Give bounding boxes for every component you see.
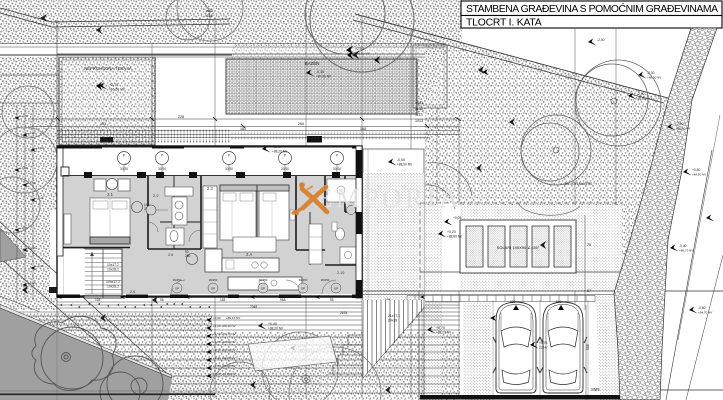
svg-text:+88,50 NV: +88,50 NV	[397, 163, 413, 167]
svg-text:+1,80 +90,00 NV: +1,80 +90,00 NV	[213, 340, 236, 344]
svg-text:90/250: 90/250	[173, 278, 182, 282]
svg-text:90/250: 90/250	[209, 278, 218, 282]
svg-text:-2,00: -2,00	[597, 38, 605, 42]
svg-text:+0,90: +0,90	[213, 316, 221, 320]
svg-text:-0,60: -0,60	[698, 306, 706, 310]
svg-text:+88,30 NV: +88,30 NV	[647, 76, 661, 80]
svg-text:103: 103	[100, 122, 106, 126]
svg-text:-0,00: -0,00	[397, 158, 405, 162]
svg-text:2678: 2678	[340, 311, 347, 315]
svg-text:+87,50 NV: +87,50 NV	[316, 75, 332, 79]
svg-text:260: 260	[298, 122, 304, 126]
svg-text:1463: 1463	[415, 101, 423, 105]
svg-text:-85,50 NV: -85,50 NV	[637, 97, 651, 101]
svg-text:+2,70: +2,70	[20, 114, 28, 118]
svg-text:-0,40: -0,40	[679, 244, 687, 248]
svg-text:+1,20: +1,20	[36, 196, 44, 200]
svg-text:NEPROHODNA TERASA: NEPROHODNA TERASA	[84, 66, 132, 71]
svg-text:+0,20: +0,20	[447, 230, 456, 234]
svg-text:1125: 1125	[205, 14, 213, 18]
svg-text:+89,10 NV: +89,10 NV	[226, 316, 240, 320]
svg-text:+2,10: +2,10	[36, 146, 44, 150]
svg-text:2.10: 2.10	[337, 271, 344, 275]
svg-text:-0,30: -0,30	[316, 70, 324, 74]
svg-text:95A: 95A	[280, 298, 287, 302]
svg-text:+0,70: +0,70	[436, 326, 445, 330]
svg-text:+0,15: +0,15	[28, 281, 36, 285]
svg-text:183: 183	[240, 127, 246, 131]
svg-text:2.3: 2.3	[207, 186, 213, 191]
svg-text:+0,40: +0,40	[272, 145, 281, 149]
svg-text:250: 250	[185, 254, 191, 258]
svg-text:2.2: 2.2	[153, 193, 159, 198]
svg-text:SP: SP	[175, 287, 179, 291]
svg-text:30/30: 30/30	[120, 167, 128, 171]
svg-text:10x28,2: 10x28,2	[107, 268, 119, 272]
svg-text:+2,40: +2,40	[28, 131, 36, 135]
svg-text:1013: 1013	[415, 119, 423, 123]
svg-text:+0,80: +0,80	[692, 168, 701, 172]
svg-text:+2,40: +2,40	[355, 47, 364, 51]
svg-text:+84,70 NV: +84,70 NV	[698, 311, 712, 315]
svg-text:103: 103	[95, 298, 101, 302]
svg-text:90/250: 90/250	[321, 278, 330, 282]
svg-text:30/30: 30/30	[158, 167, 166, 171]
svg-text:+0,40: +0,40	[268, 322, 277, 326]
svg-text:SP: SP	[261, 287, 265, 291]
svg-text:10x17,2: 10x17,2	[107, 263, 119, 267]
svg-text:2.A: 2.A	[246, 252, 252, 257]
svg-text:+1,20 +89,40 NV: +1,20 +89,40 NV	[213, 324, 236, 328]
svg-text:500: 500	[510, 300, 516, 304]
svg-text:-2,00: -2,00	[637, 92, 645, 96]
svg-text:SP: SP	[211, 287, 215, 291]
svg-text:SP: SP	[334, 287, 338, 291]
svg-text:30/30: 30/30	[333, 167, 341, 171]
svg-text:95: 95	[160, 298, 164, 302]
svg-text:+2,10 +90,30 NV: +2,10 +90,30 NV	[213, 348, 236, 352]
svg-text:TLOCRT I. KATA: TLOCRT I. KATA	[466, 18, 542, 29]
svg-text:30/30: 30/30	[225, 167, 233, 171]
svg-text:+86,70 NV: +86,70 NV	[679, 249, 693, 253]
svg-text:+2,70: +2,70	[109, 83, 118, 87]
svg-text:EMPORIA: EMPORIA	[316, 183, 462, 213]
svg-text:+0,75: +0,75	[539, 341, 548, 345]
svg-text:75: 75	[587, 243, 591, 247]
svg-text:90/250: 90/250	[299, 278, 308, 282]
svg-text:95: 95	[330, 298, 334, 302]
svg-text:STAMBENA GRAĐEVINA S POMOĆNIM: STAMBENA GRAĐEVINA S POMOĆNIM GRAĐEVINAM…	[466, 2, 718, 15]
svg-text:+88,20 NV: +88,20 NV	[436, 331, 452, 335]
svg-text:SP: SP	[301, 287, 305, 291]
svg-text:30/30: 30/30	[281, 167, 289, 171]
svg-text:555: 555	[586, 344, 590, 350]
svg-text:500: 500	[556, 300, 562, 304]
svg-text:1135: 1135	[415, 107, 423, 111]
svg-text:+2,40 +90,60 NV: +2,40 +90,60 NV	[213, 356, 236, 360]
svg-text:228: 228	[178, 115, 184, 119]
svg-text:+86,30 NV: +86,30 NV	[676, 127, 690, 131]
svg-text:183: 183	[220, 298, 226, 302]
svg-text:22 NV: 22 NV	[539, 346, 549, 350]
svg-text:SOLARI 190X90 ∠=35°: SOLARI 190X90 ∠=35°	[497, 245, 540, 250]
svg-text:+0,60: +0,60	[28, 246, 36, 250]
svg-text:+84,50 NV: +84,50 NV	[692, 173, 706, 177]
svg-text:21x17,1: 21x17,1	[388, 314, 400, 318]
svg-text:2.6: 2.6	[168, 253, 173, 257]
svg-text:7048: 7048	[250, 305, 257, 309]
svg-text:29x28: 29x28	[388, 319, 397, 323]
svg-text:+1,80: +1,80	[20, 166, 28, 170]
svg-text:10hx17,2: 10hx17,2	[106, 280, 120, 284]
svg-text:1B. IGRALIŠTE: 1B. IGRALIŠTE	[564, 181, 592, 186]
svg-text:+0,05: +0,05	[453, 216, 462, 220]
svg-text:-2,00: -2,00	[647, 71, 655, 75]
svg-text:+0,90: +0,90	[20, 226, 28, 230]
svg-text:168: 168	[360, 127, 366, 131]
svg-text:2.1: 2.1	[107, 192, 113, 197]
svg-text:+1,50 +89,70 NV: +1,50 +89,70 NV	[213, 332, 236, 336]
svg-text:1113: 1113	[415, 113, 422, 117]
svg-text:+0,30: +0,30	[36, 264, 44, 268]
svg-text:+88,20 NV: +88,20 NV	[272, 150, 288, 154]
svg-text:BAZEN: BAZEN	[305, 61, 320, 66]
svg-text:10x28,2: 10x28,2	[107, 285, 119, 289]
svg-text:+88,80 NV: +88,80 NV	[447, 235, 463, 239]
svg-text:-2,00: -2,00	[676, 122, 684, 126]
svg-text:2.6: 2.6	[130, 290, 135, 294]
svg-text:+90,50 NV: +90,50 NV	[109, 88, 125, 92]
svg-text:90/250: 90/250	[259, 278, 268, 282]
